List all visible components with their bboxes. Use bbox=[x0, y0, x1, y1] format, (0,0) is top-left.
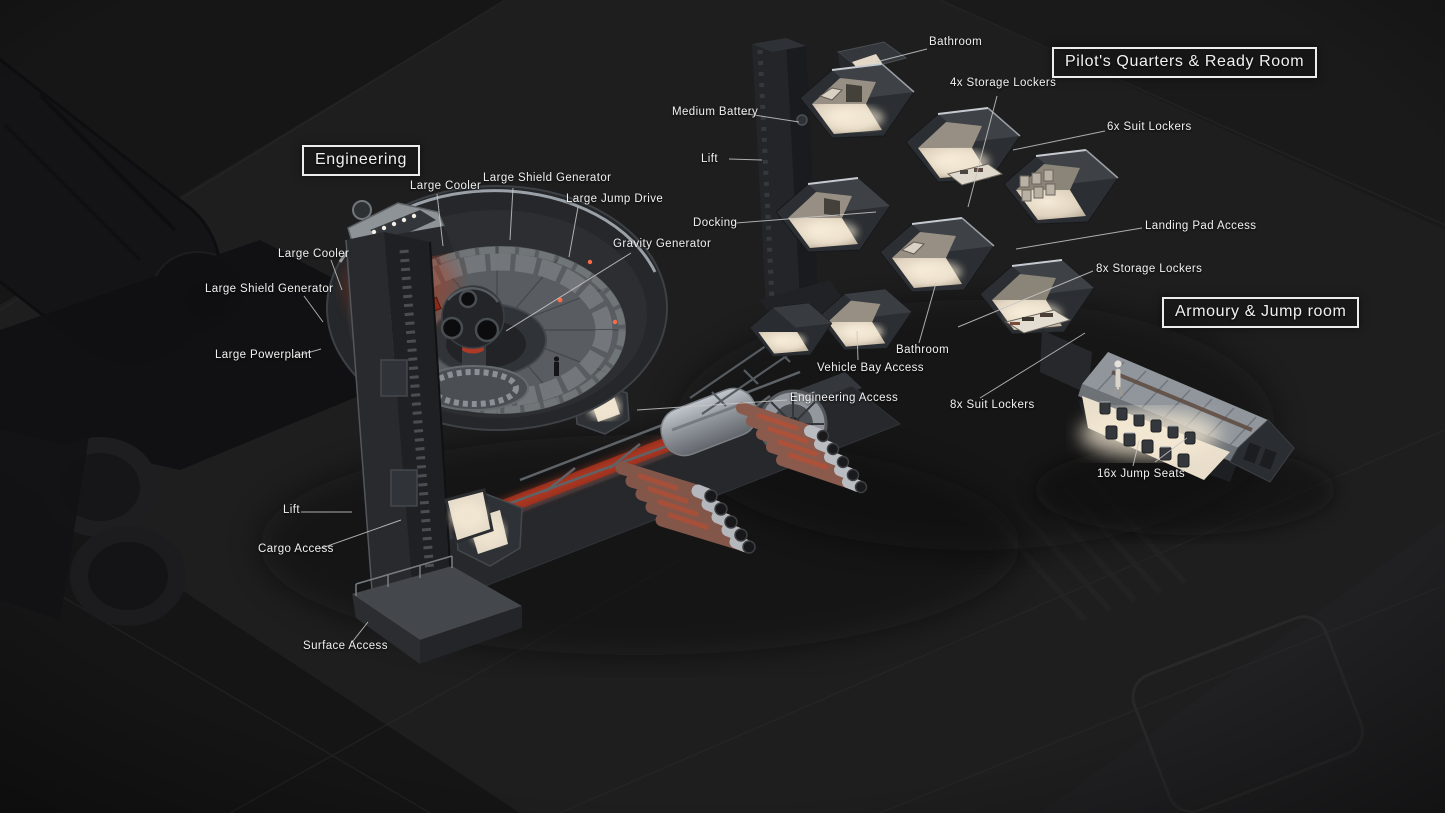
ship-cutaway-diagram: Engineering Pilot's Quarters & Ready Roo… bbox=[0, 0, 1445, 813]
label-docking: Docking bbox=[693, 217, 737, 230]
label-lift-lower: Lift bbox=[283, 504, 300, 517]
scene-illustration bbox=[0, 0, 1445, 813]
section-title-armoury-jump-room: Armoury & Jump room bbox=[1162, 297, 1359, 328]
label-bathroom-lower: Bathroom bbox=[896, 344, 949, 357]
label-large-shield-generator-left: Large Shield Generator bbox=[205, 283, 333, 296]
label-vehicle-bay-access: Vehicle Bay Access bbox=[817, 362, 924, 375]
label-large-jump-drive: Large Jump Drive bbox=[566, 193, 663, 206]
label-jump-seats-16x: 16x Jump Seats bbox=[1097, 468, 1185, 481]
label-engineering-access: Engineering Access bbox=[790, 392, 898, 405]
label-suit-lockers-6x: 6x Suit Lockers bbox=[1107, 121, 1192, 134]
label-storage-lockers-8x: 8x Storage Lockers bbox=[1096, 263, 1202, 276]
label-large-cooler-top: Large Cooler bbox=[410, 180, 481, 193]
label-surface-access: Surface Access bbox=[303, 640, 388, 653]
label-bathroom-top: Bathroom bbox=[929, 36, 982, 49]
label-gravity-generator: Gravity Generator bbox=[613, 238, 711, 251]
vignette bbox=[0, 0, 1445, 813]
label-storage-lockers-4x: 4x Storage Lockers bbox=[950, 77, 1056, 90]
label-large-powerplant: Large Powerplant bbox=[215, 349, 312, 362]
label-medium-battery: Medium Battery bbox=[672, 106, 758, 119]
label-large-shield-generator-top: Large Shield Generator bbox=[483, 172, 611, 185]
label-large-cooler-left: Large Cooler bbox=[278, 248, 349, 261]
label-cargo-access: Cargo Access bbox=[258, 543, 334, 556]
label-landing-pad-access: Landing Pad Access bbox=[1145, 220, 1256, 233]
label-lift-upper: Lift bbox=[701, 153, 718, 166]
label-suit-lockers-8x: 8x Suit Lockers bbox=[950, 399, 1035, 412]
section-title-pilots-quarters: Pilot's Quarters & Ready Room bbox=[1052, 47, 1317, 78]
section-title-engineering: Engineering bbox=[302, 145, 420, 176]
